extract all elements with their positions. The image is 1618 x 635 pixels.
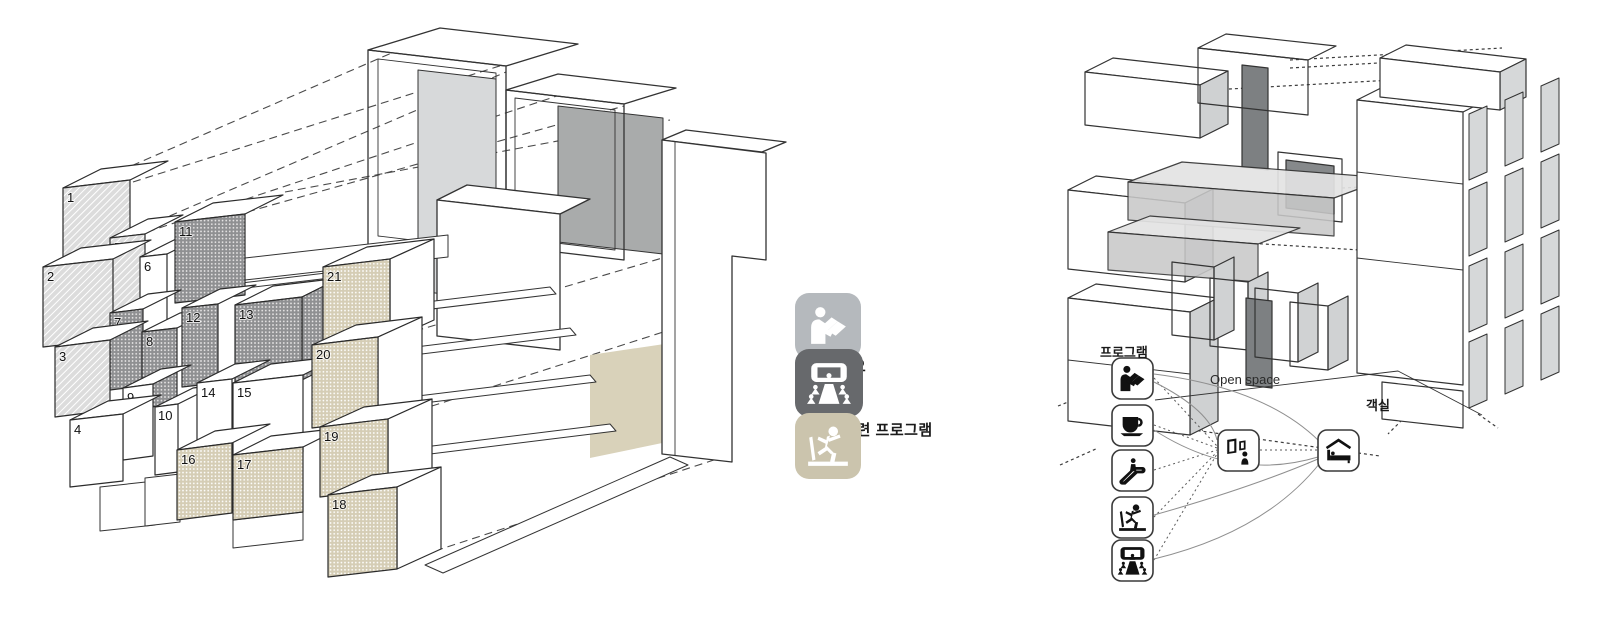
hub-icon-gallery <box>1218 430 1259 471</box>
svg-text:11: 11 <box>179 224 193 239</box>
guest-room-fins <box>1469 78 1559 408</box>
label-open-space: Open space <box>1210 372 1280 387</box>
svg-text:18: 18 <box>332 497 346 512</box>
svg-text:20: 20 <box>316 347 330 362</box>
program-icon-escalator <box>1112 450 1153 491</box>
health-tile <box>795 413 861 479</box>
program-icon-studio <box>1112 540 1153 581</box>
svg-text:17: 17 <box>237 457 251 472</box>
svg-text:21: 21 <box>327 269 341 284</box>
program-icon-fitness <box>1112 497 1153 538</box>
program-icon-column <box>1112 358 1153 581</box>
svg-text:14: 14 <box>201 385 215 400</box>
tower-front <box>437 200 560 350</box>
program-icon-library <box>1112 358 1153 399</box>
program-box-11: 11 <box>175 195 283 303</box>
frame-b-dark-panel <box>558 106 663 254</box>
floor-plate <box>425 457 688 573</box>
label-guest-room: 객실 <box>1366 398 1390 413</box>
svg-text:10: 10 <box>158 408 172 423</box>
svg-text:4: 4 <box>74 422 81 437</box>
svg-text:13: 13 <box>239 307 253 322</box>
svg-text:3: 3 <box>59 349 66 364</box>
svg-text:15: 15 <box>237 385 251 400</box>
program-icon-cafe <box>1112 405 1153 446</box>
slab-front <box>662 140 766 462</box>
open-space-band <box>1108 162 1388 282</box>
svg-text:12: 12 <box>186 310 200 325</box>
destination-icon-guest-room <box>1318 430 1359 471</box>
studio-tile <box>795 349 863 417</box>
svg-text:8: 8 <box>146 334 153 349</box>
svg-text:19: 19 <box>324 429 338 444</box>
left-axonometric-diagram: 1 5 6 11 2 7 8 <box>30 10 775 615</box>
svg-text:16: 16 <box>181 452 195 467</box>
right-axonometric-diagram: 프로그램 Open space 객실 <box>1050 10 1615 625</box>
frame-a-top <box>368 28 578 66</box>
diagram-canvas: 1 5 6 11 2 7 8 <box>0 0 1618 635</box>
box-number: 1 <box>67 190 74 205</box>
svg-text:6: 6 <box>144 259 151 274</box>
svg-text:2: 2 <box>47 269 54 284</box>
label-program: 프로그램 <box>1100 345 1148 360</box>
